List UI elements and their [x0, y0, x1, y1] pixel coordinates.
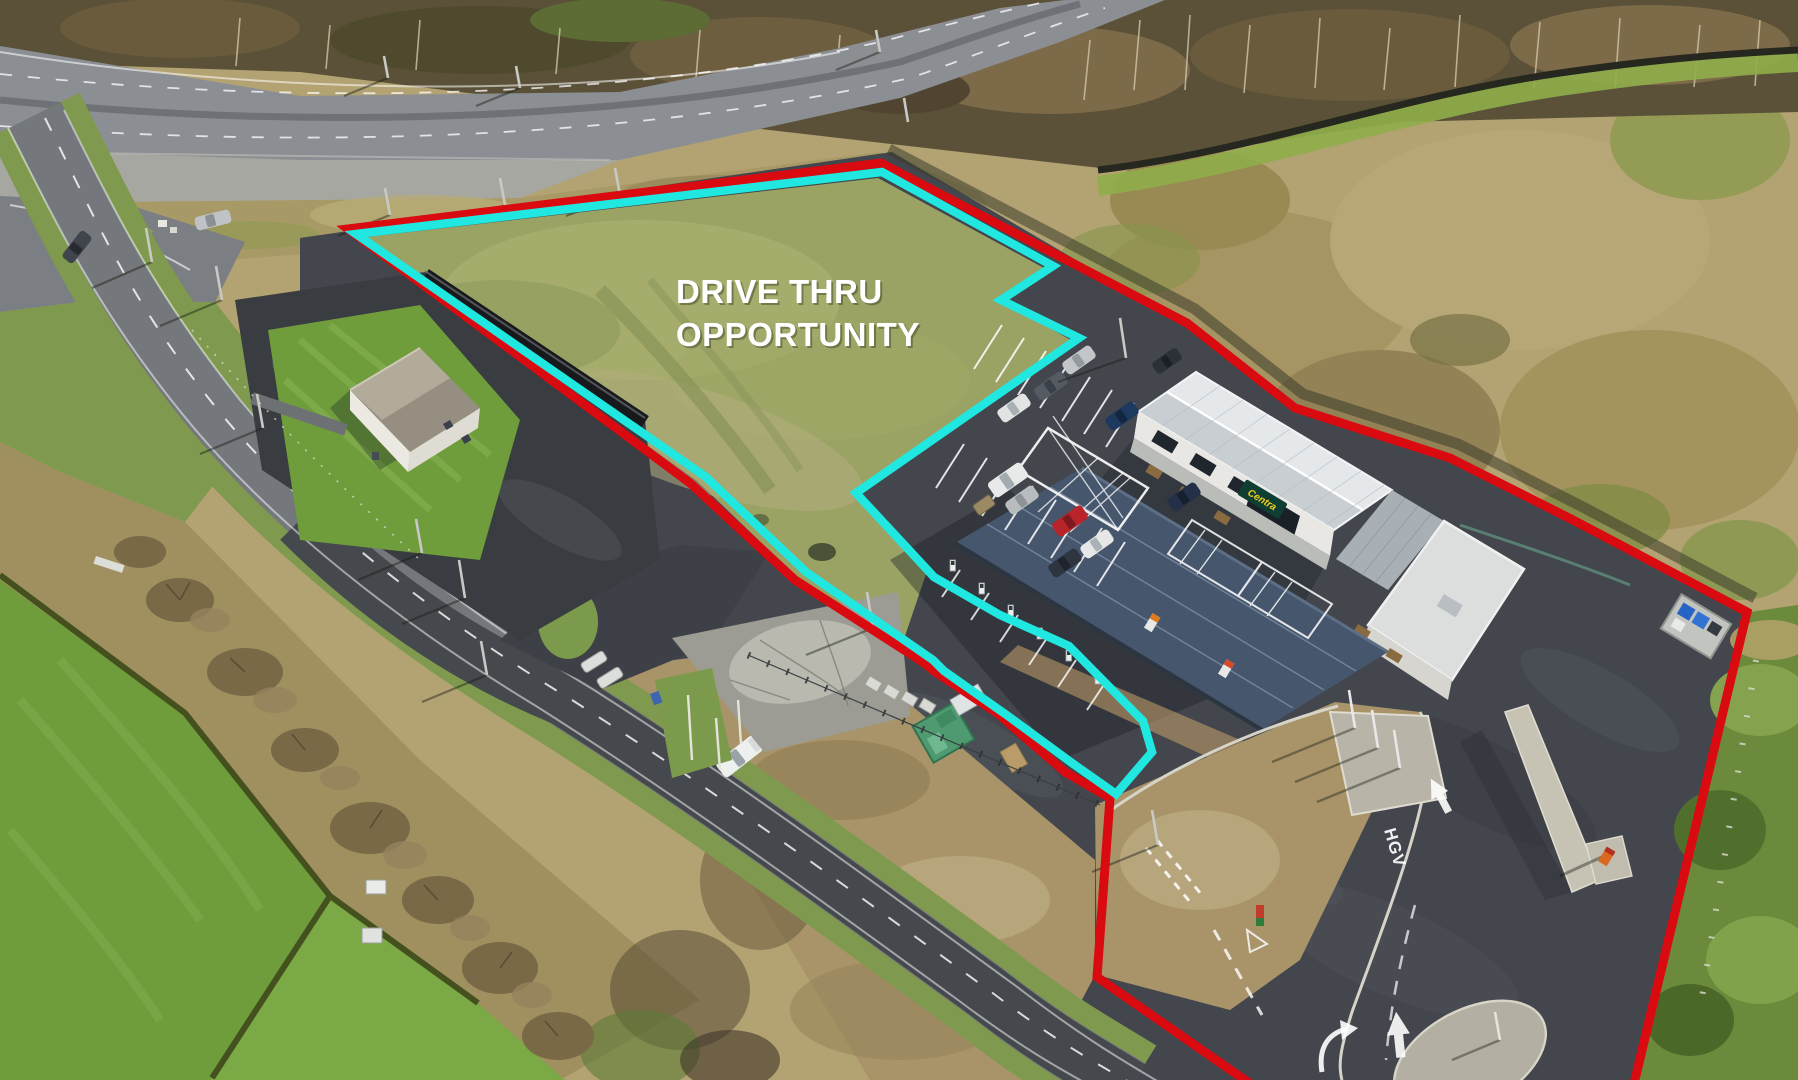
window: [372, 452, 379, 460]
aerial-site-photo: Centra: [0, 0, 1798, 1080]
utility-cabinet: [362, 928, 382, 943]
road-sign: [158, 220, 167, 227]
air-water-unit: [1256, 905, 1264, 926]
photo-canvas: Centra: [0, 0, 1798, 1080]
utility-cabinet: [366, 880, 386, 894]
headline-line2: OPPORTUNITY: [676, 316, 920, 353]
road-sign: [170, 227, 177, 233]
headline-line1: DRIVE THRU: [676, 273, 883, 310]
